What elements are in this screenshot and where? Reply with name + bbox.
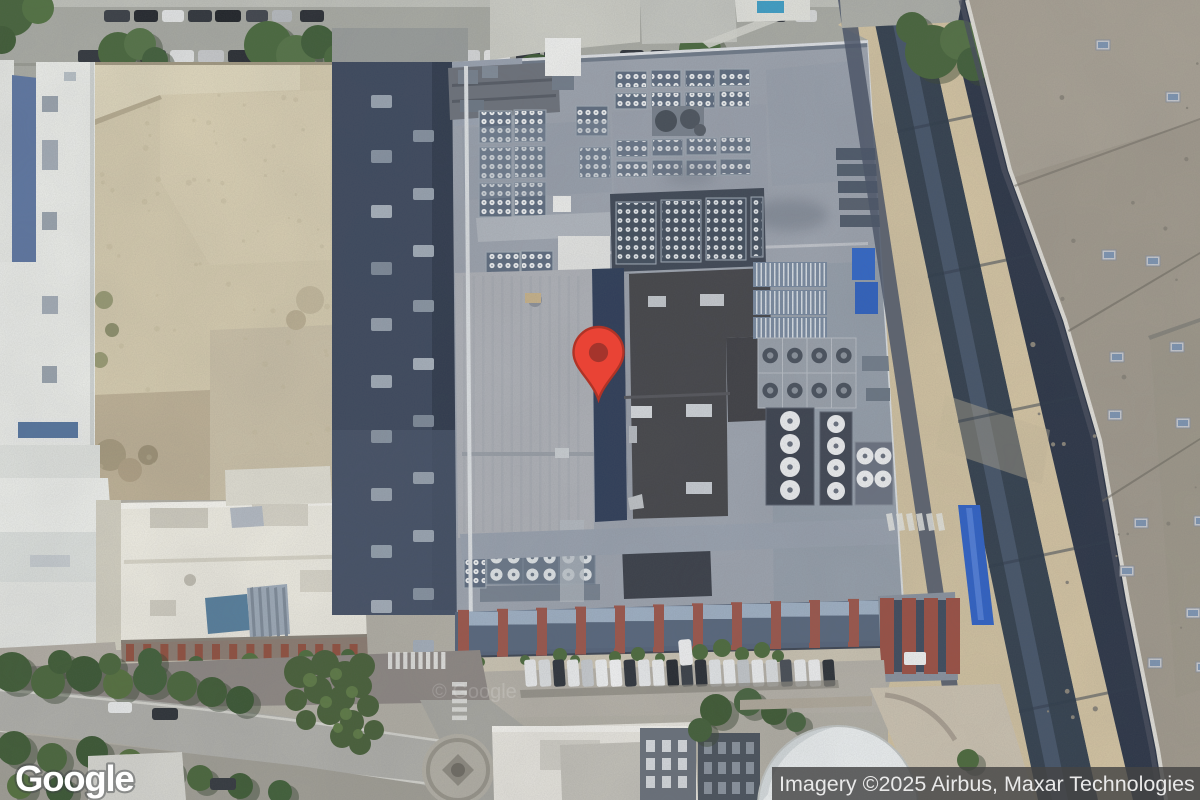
svg-text:Imagery ©2025 Airbus, Maxar Te: Imagery ©2025 Airbus, Maxar Technologies [779,772,1195,796]
svg-text:© Google: © Google [432,681,517,703]
svg-text:Google: Google [15,758,134,799]
